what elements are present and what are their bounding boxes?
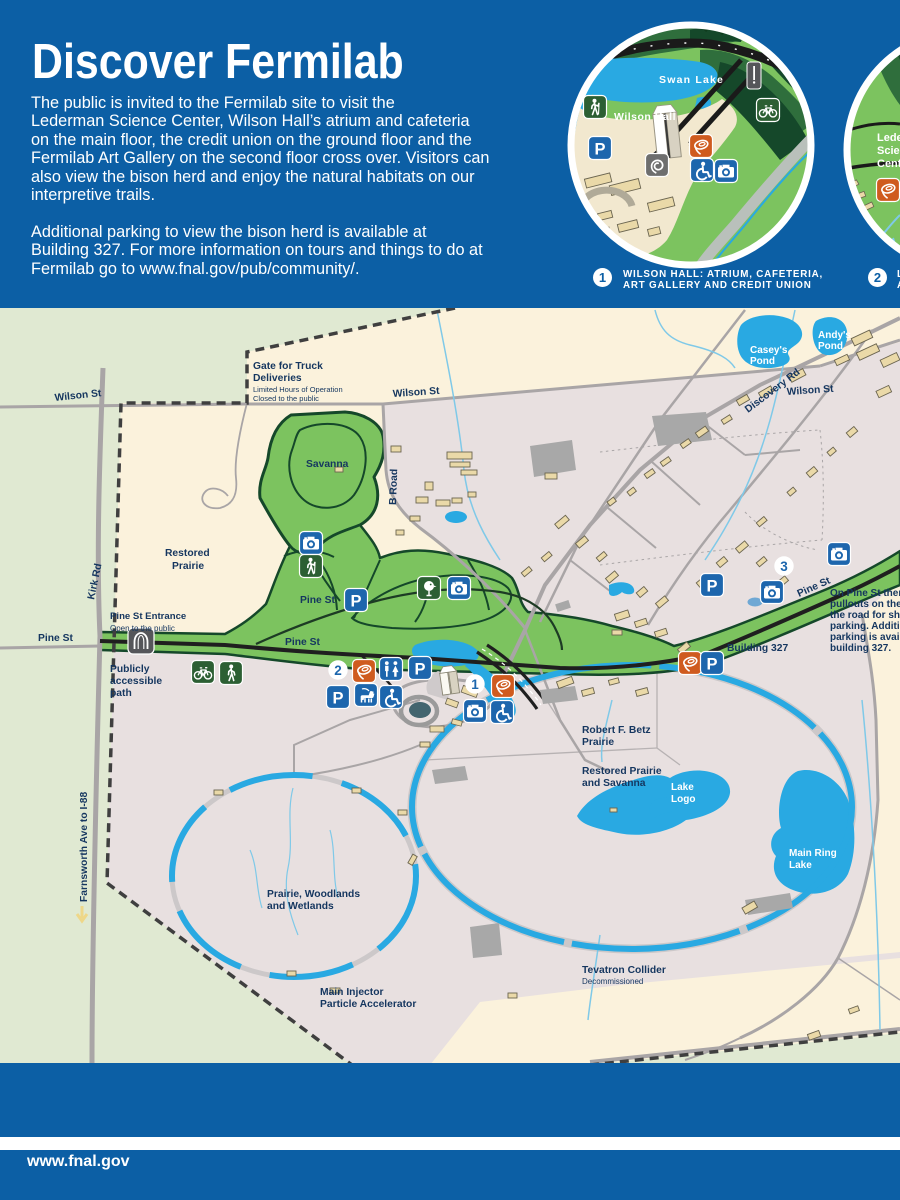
svg-text:Casey's: Casey's: [750, 345, 788, 356]
svg-text:Andy's: Andy's: [818, 330, 851, 341]
svg-text:Particle Accelerator: Particle Accelerator: [320, 999, 416, 1010]
svg-text:3: 3: [780, 559, 788, 574]
svg-text:pullouts on the si: pullouts on the si: [830, 599, 900, 610]
svg-text:Cent: Cent: [877, 158, 900, 170]
svg-text:On Pine St there a: On Pine St there a: [830, 588, 900, 599]
svg-text:Pond: Pond: [818, 341, 843, 352]
svg-text:Pine St: Pine St: [38, 633, 73, 644]
svg-text:and Wetlands: and Wetlands: [267, 901, 334, 912]
svg-text:Lake: Lake: [789, 860, 812, 871]
svg-text:Open to the public: Open to the public: [110, 624, 175, 633]
svg-text:Prairie, Woodlands: Prairie, Woodlands: [267, 889, 360, 900]
svg-text:Gate for Truck: Gate for Truck: [253, 361, 323, 372]
svg-text:Pine St Entrance: Pine St Entrance: [110, 611, 186, 622]
svg-text:Savanna: Savanna: [306, 459, 349, 470]
svg-text:2: 2: [334, 663, 342, 678]
svg-text:B Road: B Road: [388, 469, 400, 505]
svg-text:parking. Additiona: parking. Additiona: [830, 621, 900, 632]
svg-text:Pine St: Pine St: [285, 637, 320, 648]
svg-text:Building 327: Building 327: [727, 643, 788, 654]
svg-text:Logo: Logo: [671, 794, 695, 805]
svg-text:Pond: Pond: [750, 356, 775, 367]
svg-text:Robert F. Betz: Robert F. Betz: [582, 725, 651, 736]
svg-text:Deliveries: Deliveries: [253, 373, 302, 384]
svg-text:Pine St: Pine St: [300, 595, 335, 606]
svg-text:Prairie: Prairie: [172, 561, 204, 572]
svg-text:parking is availab: parking is availab: [830, 632, 900, 643]
svg-text:Decommissioned: Decommissioned: [582, 977, 643, 986]
svg-text:Scie: Scie: [877, 145, 900, 157]
svg-text:Swan Lake: Swan Lake: [659, 74, 724, 86]
svg-text:Wilson Hall: Wilson Hall: [614, 111, 676, 123]
svg-text:Lede: Lede: [877, 132, 900, 144]
svg-text:Farnsworth Ave to I-88: Farnsworth Ave to I-88: [79, 791, 90, 902]
svg-text:Tevatron Collider: Tevatron Collider: [582, 965, 666, 976]
svg-text:Restored: Restored: [165, 548, 210, 559]
svg-text:accessible: accessible: [110, 676, 162, 687]
svg-text:1: 1: [471, 677, 479, 692]
svg-text:Limited Hours of Operation: Limited Hours of Operation: [253, 385, 343, 394]
svg-text:Main Injector: Main Injector: [320, 987, 384, 998]
svg-text:Lake: Lake: [671, 782, 694, 793]
svg-text:Closed to the public: Closed to the public: [253, 394, 319, 403]
svg-text:and Savanna: and Savanna: [582, 778, 646, 789]
svg-text:building 327.: building 327.: [830, 643, 891, 654]
svg-text:Publicly: Publicly: [110, 664, 150, 675]
svg-text:Main Ring: Main Ring: [789, 848, 837, 859]
svg-text:Restored Prairie: Restored Prairie: [582, 766, 662, 777]
svg-text:path: path: [110, 688, 132, 699]
svg-text:the road for short: the road for short: [830, 610, 900, 621]
svg-text:Prairie: Prairie: [582, 737, 614, 748]
